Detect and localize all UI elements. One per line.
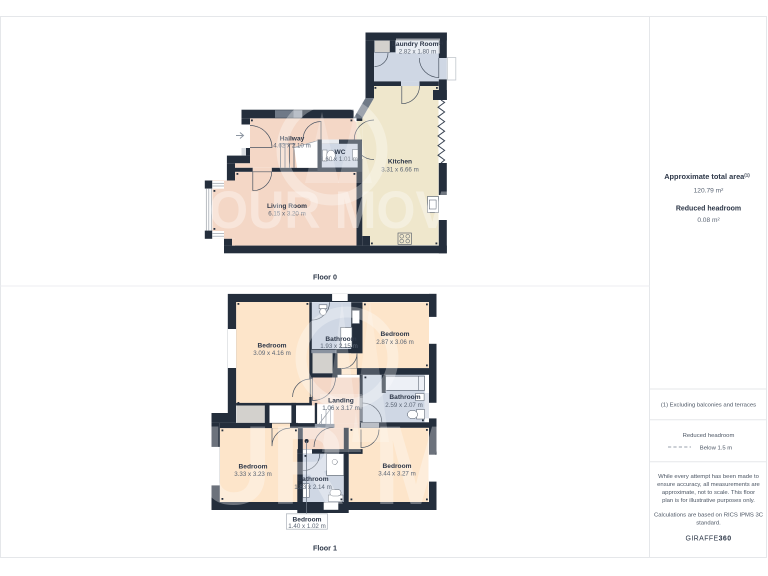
svg-text:120.79 m²: 120.79 m²	[694, 188, 724, 195]
svg-text:Calculations are based on RICS: Calculations are based on RICS IPMS 3C	[654, 513, 764, 519]
svg-text:Bathroom: Bathroom	[389, 394, 420, 401]
svg-text:Below 1.5 m: Below 1.5 m	[700, 445, 733, 451]
svg-text:(1) Excluding balconies and te: (1) Excluding balconies and terraces	[661, 403, 756, 409]
svg-text:3.33 x 3.23 m: 3.33 x 3.23 m	[234, 471, 272, 478]
svg-text:GIRAFFE360: GIRAFFE360	[685, 536, 731, 543]
svg-text:Landing: Landing	[328, 397, 354, 404]
svg-text:2.82 x 1.80 m: 2.82 x 1.80 m	[399, 49, 437, 56]
svg-text:OUR MOV: OUR MOV	[118, 403, 606, 528]
svg-text:Reduced headroom: Reduced headroom	[676, 206, 741, 213]
svg-text:approximate, not to scale. Thi: approximate, not to scale. This floor	[662, 490, 755, 496]
svg-text:Bedroom: Bedroom	[381, 331, 410, 338]
svg-text:Bathroom: Bathroom	[325, 336, 356, 343]
svg-text:ensure accuracy, all measureme: ensure accuracy, all measurements are	[657, 482, 760, 488]
svg-text:plan is for illustrative purpo: plan is for illustrative purposes only.	[662, 498, 755, 504]
svg-text:Bedroom: Bedroom	[239, 464, 268, 471]
svg-text:2.87 x 3.06 m: 2.87 x 3.06 m	[376, 339, 414, 346]
svg-text:Kitchen: Kitchen	[388, 159, 412, 166]
svg-text:1.40 x 1.02 m: 1.40 x 1.02 m	[288, 523, 326, 530]
svg-text:Approximate total area(1): Approximate total area(1)	[664, 172, 750, 181]
svg-text:1.06 x 3.17 m: 1.06 x 3.17 m	[322, 405, 360, 412]
svg-text:Floor 1: Floor 1	[313, 544, 337, 553]
svg-text:1.93 x 2.15 m: 1.93 x 2.15 m	[320, 343, 358, 350]
svg-text:Laundry Room(1): Laundry Room(1)	[392, 41, 444, 48]
svg-text:3.31 x 6.66 m: 3.31 x 6.66 m	[381, 167, 419, 174]
svg-text:Reduced headroom: Reduced headroom	[683, 433, 735, 439]
svg-text:1.83 x 2.14 m: 1.83 x 2.14 m	[294, 484, 332, 491]
svg-text:Bedroom: Bedroom	[383, 463, 412, 470]
svg-text:Bedroom: Bedroom	[258, 343, 287, 350]
svg-text:Floor 0: Floor 0	[313, 273, 337, 282]
svg-text:While every attempt has been m: While every attempt has been made to	[658, 474, 760, 480]
svg-text:3.44 x 3.27 m: 3.44 x 3.27 m	[378, 470, 416, 477]
svg-text:0.08 m²: 0.08 m²	[697, 217, 720, 224]
svg-text:2.59 x 2.07 m: 2.59 x 2.07 m	[385, 402, 423, 409]
svg-text:OUR MOV: OUR MOV	[209, 181, 449, 240]
svg-text:3.09 x 4.16 m: 3.09 x 4.16 m	[253, 350, 291, 357]
svg-text:Bathroom: Bathroom	[297, 476, 328, 483]
svg-text:standard.: standard.	[696, 521, 721, 527]
